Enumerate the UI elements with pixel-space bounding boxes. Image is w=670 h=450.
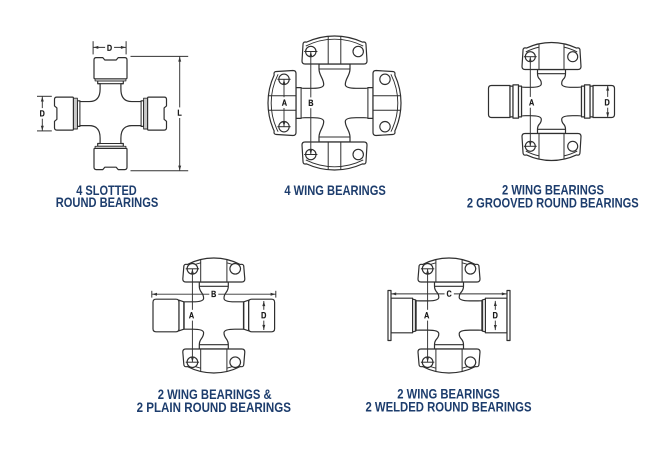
svg-text:2 GROOVED ROUND BEARINGS: 2 GROOVED ROUND BEARINGS <box>467 195 639 210</box>
svg-text:ROUND BEARINGS: ROUND BEARINGS <box>56 195 159 210</box>
svg-text:2 PLAIN ROUND BEARINGS: 2 PLAIN ROUND BEARINGS <box>137 400 291 415</box>
svg-text:2 WELDED ROUND BEARINGS: 2 WELDED ROUND BEARINGS <box>365 399 531 414</box>
svg-text:4 WING BEARINGS: 4 WING BEARINGS <box>284 183 385 198</box>
